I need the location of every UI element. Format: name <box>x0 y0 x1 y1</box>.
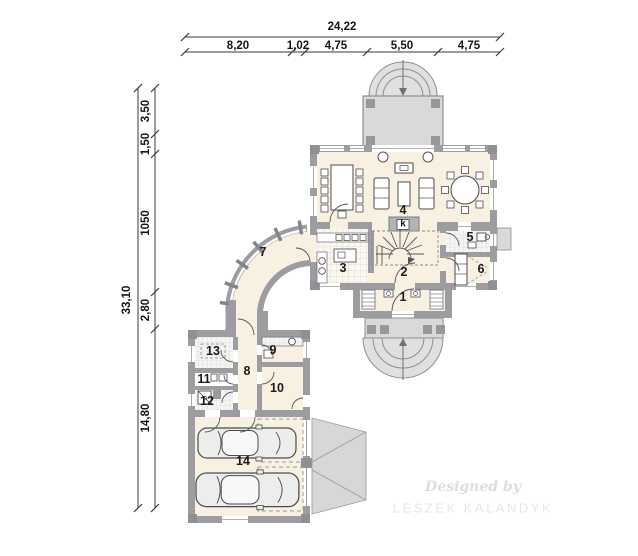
room-label-7: 7 <box>260 245 267 259</box>
dim-top-seg-4: 5,50 <box>391 40 413 52</box>
fireplace-label: k <box>400 219 406 230</box>
room-label-11: 11 <box>197 372 210 386</box>
floor-plan-drawing <box>0 0 638 556</box>
dim-left-seg-1: 3,50 <box>140 100 152 122</box>
column-icon <box>378 152 388 162</box>
dim-left-seg-3: 1050 <box>140 210 152 236</box>
dim-left-seg-2: 1,50 <box>140 133 152 155</box>
entrance-porch <box>363 318 445 380</box>
garden-terrace <box>363 60 443 148</box>
dim-top-seg-2: 1,02 <box>287 40 309 52</box>
column-icon <box>423 152 433 162</box>
watermark-designed-by: Designed by <box>425 479 521 495</box>
room-label-3: 3 <box>340 261 347 275</box>
room-label-9: 9 <box>270 343 277 357</box>
room-label-2: 2 <box>401 265 408 279</box>
room-label-12: 12 <box>200 394 214 408</box>
wardrobe <box>430 290 443 309</box>
dim-top-seg-1: 8,20 <box>227 40 249 52</box>
cabinet <box>455 254 467 285</box>
car-icon <box>196 470 299 510</box>
dim-total-width: 24,22 <box>328 21 357 33</box>
sofa <box>374 178 389 209</box>
room-label-6: 6 <box>478 262 485 276</box>
duct-block <box>213 390 221 399</box>
laundry-counter <box>262 337 303 346</box>
dim-top-seg-5: 4,75 <box>458 40 480 52</box>
dining-table <box>331 165 353 210</box>
sink-icon <box>289 338 296 345</box>
round-table <box>451 176 479 204</box>
room-label-4: 4 <box>400 203 407 217</box>
sofa <box>419 178 434 209</box>
room-label-5: 5 <box>467 230 474 244</box>
dim-total-height: 33,10 <box>121 286 133 315</box>
dim-left-seg-4: 2,80 <box>140 299 152 321</box>
room-label-8: 8 <box>244 364 251 378</box>
dim-left-seg-5: 14,80 <box>140 404 152 433</box>
floor-plan-page: 24,22 8,20 1,02 4,75 5,50 4,75 33,10 3,5… <box>0 0 638 556</box>
room-label-13: 13 <box>206 344 220 358</box>
side-step <box>497 228 511 250</box>
dim-top-seg-3: 4,75 <box>325 40 347 52</box>
driveway-apron <box>312 418 366 514</box>
room-label-10: 10 <box>270 381 284 395</box>
wardrobe <box>362 290 375 309</box>
room-label-1: 1 <box>400 290 407 304</box>
watermark-author: LESZEK KALANDYK <box>393 501 553 516</box>
toilet-icon <box>211 374 217 381</box>
room-label-14: 14 <box>236 454 250 468</box>
